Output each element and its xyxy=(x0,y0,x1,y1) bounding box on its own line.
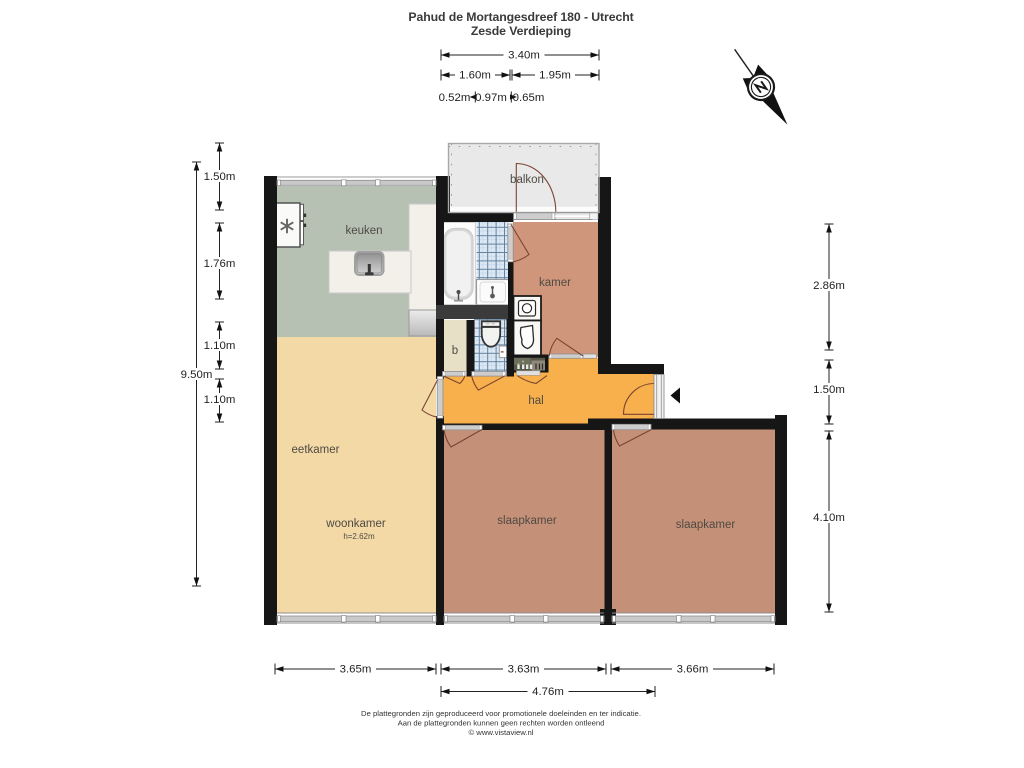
svg-text:3.65m: 3.65m xyxy=(340,664,372,676)
svg-text:0.52m: 0.52m xyxy=(439,92,471,104)
svg-text:1.10m: 1.10m xyxy=(204,394,236,406)
svg-text:keuken: keuken xyxy=(345,225,382,237)
svg-text:slaapkamer: slaapkamer xyxy=(676,519,736,531)
svg-text:1.95m: 1.95m xyxy=(539,70,571,82)
svg-text:0.97m: 0.97m xyxy=(475,92,507,104)
svg-text:9.50m: 9.50m xyxy=(181,369,213,381)
svg-text:h=2.62m: h=2.62m xyxy=(343,532,375,541)
svg-text:Aan de plattegronden kunnen ge: Aan de plattegronden kunnen geen rechten… xyxy=(398,719,605,728)
svg-text:4.10m: 4.10m xyxy=(813,512,845,524)
svg-text:Pahud de Mortangesdreef 180 -: Pahud de Mortangesdreef 180 - Utrecht xyxy=(408,10,633,24)
svg-text:slaapkamer: slaapkamer xyxy=(497,515,557,527)
svg-text:0.65m: 0.65m xyxy=(513,92,545,104)
svg-text:4.76m: 4.76m xyxy=(532,686,564,698)
svg-text:3.40m: 3.40m xyxy=(508,50,540,62)
svg-text:woonkamer: woonkamer xyxy=(325,518,386,530)
svg-text:1.50m: 1.50m xyxy=(204,171,236,183)
svg-text:1.60m: 1.60m xyxy=(459,70,491,82)
svg-text:3.63m: 3.63m xyxy=(508,664,540,676)
svg-text:eetkamer: eetkamer xyxy=(292,444,340,456)
svg-text:1.76m: 1.76m xyxy=(204,258,236,270)
svg-text:hal: hal xyxy=(528,395,543,407)
svg-text:1.50m: 1.50m xyxy=(813,384,845,396)
svg-text:b: b xyxy=(452,345,458,357)
svg-text:De plattegronden zijn geproduc: De plattegronden zijn geproduceerd voor … xyxy=(361,709,641,718)
svg-text:3.66m: 3.66m xyxy=(677,664,709,676)
svg-text:© www.vistaview.nl: © www.vistaview.nl xyxy=(468,728,533,737)
svg-text:1.10m: 1.10m xyxy=(204,340,236,352)
svg-text:kamer: kamer xyxy=(539,277,571,289)
svg-text:Zesde Verdieping: Zesde Verdieping xyxy=(471,24,571,38)
svg-text:2.86m: 2.86m xyxy=(813,280,845,292)
svg-text:balkon: balkon xyxy=(510,174,544,186)
